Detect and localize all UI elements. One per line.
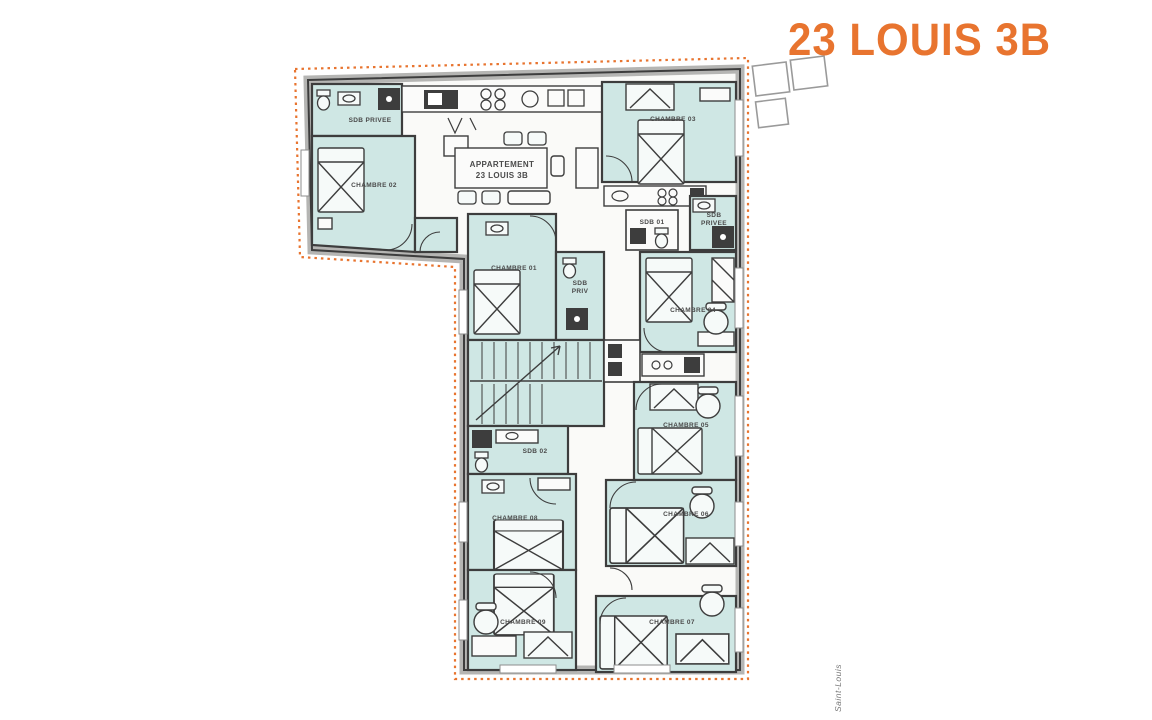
room-label: SDB 01 [640,219,665,226]
chair-icon [551,156,564,176]
wardrobe-icon [676,634,729,664]
wc-room-upper [604,340,640,382]
chair-icon [696,387,720,418]
room-label-line2: PRIV [572,288,589,295]
wing-closet [415,218,457,252]
shower-icon [566,308,588,330]
sideboard [576,148,598,188]
room-label: CHAMBRE 02 [351,182,397,189]
shower-icon [712,226,734,248]
room-label: CHAMBRE 07 [649,619,695,626]
floor-plan-page: 23 LOUIS 3B Saint-Louis [0,0,1152,720]
chair-icon [700,585,724,616]
toilet-icon [608,344,622,358]
staircase [468,340,604,426]
side-caption: Saint-Louis [833,652,843,712]
appliance-icon [684,357,700,373]
bed-icon [318,148,364,212]
wardrobe-icon [626,84,674,110]
chair-icon [474,603,498,634]
plan-title: 23 LOUIS 3B [788,14,1051,66]
room-label: SDB 02 [523,448,548,455]
room-label: CHAMBRE 06 [663,511,709,518]
shower-icon [630,228,646,244]
room-label: CHAMBRE 03 [650,116,696,123]
chair-icon [504,132,522,145]
bed-icon [474,270,520,334]
counter-upper [642,354,704,376]
room-label: CHAMBRE 08 [492,515,538,522]
room-label-line2: PRIVEE [701,220,727,227]
apartment-label-line1: APPARTEMENT [470,160,535,169]
bed-icon [638,428,702,474]
desk [472,636,516,656]
room-chambre-07: CHAMBRE 07 [596,585,736,672]
room-sdb-02: SDB 02 [468,426,568,474]
chair-icon [528,132,546,145]
sink-icon [482,480,504,493]
toilet-icon [317,90,330,110]
room-chambre-03: CHAMBRE 03 [602,82,736,184]
room-label: CHAMBRE 09 [500,619,546,626]
bed-icon [494,520,563,570]
room-chambre-01: CHAMBRE 01 [468,214,556,340]
chair-icon [458,191,476,204]
floor-plan-svg: SDB PRIVEE CHAMBRE 02 [0,0,1152,720]
nightstand [318,218,332,229]
room-sdb-privee-center: SDB PRIV [556,252,604,340]
shelf [712,258,734,302]
room-sdb-privee-right: SDB PRIVEE [690,196,736,250]
room-chambre-05: CHAMBRE 05 [634,382,736,480]
toilet-icon [475,452,488,472]
toilet-icon [563,258,576,278]
apartment-label-line2: 23 LOUIS 3B [476,171,528,180]
room-label: SDB PRIVEE [349,117,392,124]
toilet-icon [655,228,668,248]
room-sdb-privee-ch02: SDB PRIVEE [312,84,402,136]
chair-icon [482,191,500,204]
bed-icon [638,120,684,184]
room-chambre-08: CHAMBRE 08 [468,474,576,570]
room-label: CHAMBRE 04 [670,307,716,314]
room-label: CHAMBRE 05 [663,422,709,429]
shelf [538,478,570,490]
sink-icon [338,92,360,105]
room-chambre-02: CHAMBRE 02 [312,136,415,252]
shower-icon [608,362,622,376]
room-chambre-04: CHAMBRE 04 [640,252,736,352]
room-label-line1: SDB [707,212,722,219]
room-label: CHAMBRE 01 [491,265,537,272]
bench [508,191,550,204]
sink-basin [428,93,442,105]
desk [700,88,730,101]
wardrobe-icon [524,632,572,658]
sink-icon [693,199,715,212]
washer-icon [472,430,492,448]
sink-icon [486,222,508,235]
wardrobe-icon [650,384,698,410]
adjacent-structures [752,56,827,128]
room-chambre-06: CHAMBRE 06 [606,480,736,566]
shower-icon [378,88,400,110]
wardrobe-icon [686,538,734,564]
room-label-line1: SDB [573,280,588,287]
counter [496,430,538,443]
room-chambre-09: CHAMBRE 09 [468,570,576,670]
